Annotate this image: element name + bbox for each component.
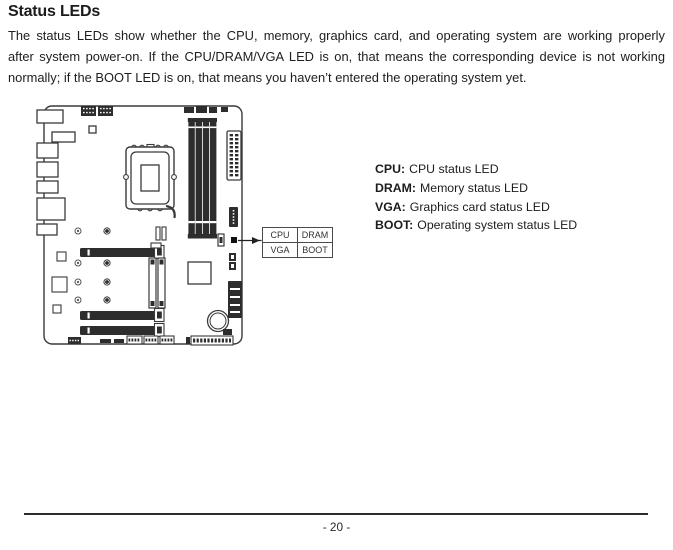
usb-header	[229, 207, 238, 227]
legend-text: Memory status LED	[420, 181, 528, 195]
legend-label: BOOT:	[375, 218, 413, 232]
legend-label: VGA:	[375, 200, 406, 214]
chipset	[188, 262, 211, 284]
callout-cell-dram: DRAM	[298, 228, 333, 243]
legend-label: CPU:	[375, 162, 405, 176]
manual-page: Status LEDs The status LEDs show whether…	[0, 0, 673, 550]
legend-label: DRAM:	[375, 181, 416, 195]
top-edge-connectors	[184, 106, 228, 113]
legend-item-dram: DRAM:Memory status LED	[375, 179, 577, 198]
legend-text: CPU status LED	[409, 162, 499, 176]
callout-cell-vga: VGA	[263, 243, 298, 258]
page-number: - 20 -	[0, 520, 673, 534]
callout-cell-boot: BOOT	[298, 243, 333, 258]
legend-text: Graphics card status LED	[410, 200, 550, 214]
legend-text: Operating system status LED	[417, 218, 577, 232]
atx-power-connector	[227, 131, 241, 180]
callout-cell-cpu: CPU	[263, 228, 298, 243]
status-led-callout: CPU DRAM VGA BOOT	[262, 227, 333, 258]
status-led-legend: CPU:CPU status LED DRAM:Memory status LE…	[375, 160, 577, 235]
footer-rule	[24, 513, 648, 515]
legend-item-vga: VGA:Graphics card status LED	[375, 198, 577, 217]
legend-item-cpu: CPU:CPU status LED	[375, 160, 577, 179]
motherboard-diagram	[0, 0, 673, 550]
cpu-socket	[124, 145, 177, 219]
legend-item-boot: BOOT:Operating system status LED	[375, 216, 577, 235]
